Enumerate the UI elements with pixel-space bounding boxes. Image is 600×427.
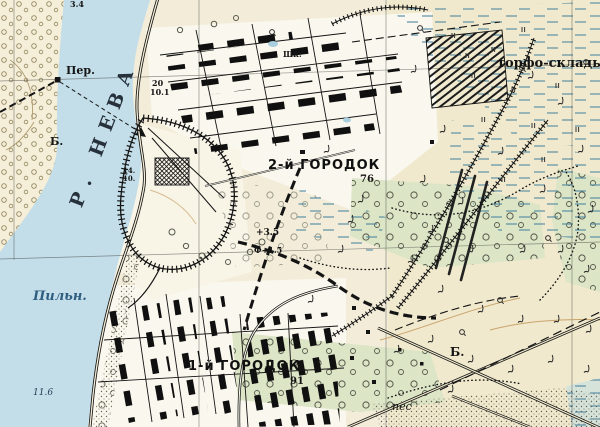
- pond: [343, 118, 351, 123]
- height-35-label: +3.5: [256, 229, 279, 238]
- town2-label: 2-й ГОРОДОК: [268, 159, 380, 172]
- river-width-20: 20: [152, 79, 163, 87]
- river-width-14: 14.: [123, 167, 135, 174]
- depth-116-label: 11.6: [33, 389, 53, 398]
- peat-storage-label: торфо-склады: [497, 57, 600, 70]
- river-depth-10: 10.: [123, 175, 135, 182]
- topographic-map[interactable]: Р. НЕВА Пер. Б. Пильн. 2-й ГОРОДОК 76 1-…: [0, 0, 600, 427]
- factory-block: [155, 158, 189, 185]
- school-label: Шк.: [283, 50, 302, 58]
- town1-label: 1-й ГОРОДОК: [188, 360, 300, 373]
- pond: [268, 41, 278, 47]
- b-east-label: Б.: [450, 346, 464, 358]
- town1-elevation: 91: [290, 377, 304, 387]
- bank-west-label: Б.: [50, 136, 63, 147]
- ferry-label: Пер.: [66, 65, 95, 76]
- sawmill-label: Пильн.: [33, 290, 87, 303]
- spot-depth-34: 3.4: [70, 0, 84, 8]
- height-f15-label: Ф+1.5: [254, 246, 282, 254]
- sand-label: пес: [392, 401, 412, 412]
- town2-elevation: 76: [360, 175, 374, 185]
- river-depth-101: 10.1: [150, 88, 169, 96]
